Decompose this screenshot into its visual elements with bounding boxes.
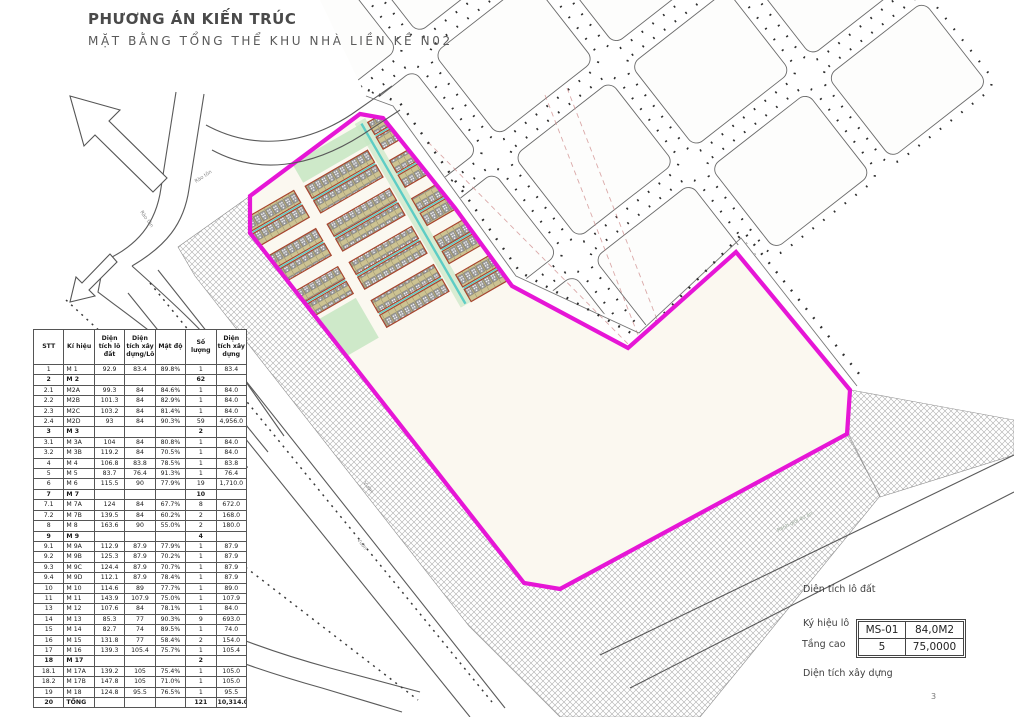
table-cell: 1: [186, 458, 216, 468]
table-row: 2.3M2C103.28481.4%184.0: [34, 406, 247, 416]
table-cell: 77: [125, 635, 155, 645]
table-cell: [125, 375, 155, 385]
table-cell: 4,956.0: [216, 417, 246, 427]
table-cell: 1: [186, 583, 216, 593]
table-cell: M 17B: [64, 677, 94, 687]
table-cell: 90: [125, 521, 155, 531]
table-cell: [216, 427, 246, 437]
table-row: 6M 6115.59077.9%191,710.0: [34, 479, 247, 489]
table-cell: 2: [186, 510, 216, 520]
lot-table-body: 1M 192.983.489.8%183.42M 2622.1M2A99.384…: [34, 365, 247, 708]
table-cell: [216, 489, 246, 499]
table-cell: 78.4%: [155, 573, 185, 583]
table-cell: 1: [186, 666, 216, 676]
page-number: 3: [931, 692, 936, 701]
table-cell: 143.9: [94, 593, 124, 603]
table-row: 17M 16139.3105.475.7%1105.4: [34, 645, 247, 655]
housing-row: [0, 30, 10, 84]
table-cell: 2.1: [34, 385, 64, 395]
table-cell: 84: [125, 437, 155, 447]
table-row: 11M 11143.9107.975.0%1107.9: [34, 593, 247, 603]
table-cell: 90.3%: [155, 417, 185, 427]
table-cell: M2A: [64, 385, 94, 395]
table-cell: 1: [186, 406, 216, 416]
table-cell: 2: [186, 521, 216, 531]
table-cell: 84: [125, 500, 155, 510]
table-cell: 105.0: [216, 666, 246, 676]
table-cell: 105: [125, 666, 155, 676]
table-cell: 104: [94, 437, 124, 447]
table-cell: 18: [34, 656, 64, 666]
table-cell: 84: [125, 396, 155, 406]
table-cell: 1: [34, 365, 64, 375]
table-cell: [216, 656, 246, 666]
table-cell: M 7B: [64, 510, 94, 520]
table-row: 1M 192.983.489.8%183.4: [34, 365, 247, 375]
table-cell: 9: [186, 614, 216, 624]
road-arrow-west: [70, 254, 117, 302]
table-cell: 95.5: [125, 687, 155, 697]
table-cell: TỔNG: [64, 698, 94, 708]
alley-drain: [0, 44, 11, 86]
table-cell: 84.0: [216, 448, 246, 458]
table-header-cell: STT: [34, 330, 64, 365]
table-cell: 1: [186, 396, 216, 406]
legend-lot-area-label: Diện tích lô đất: [803, 584, 876, 595]
table-cell: 87.9: [125, 552, 155, 562]
table-cell: 107.6: [94, 604, 124, 614]
table-cell: 1,710.0: [216, 479, 246, 489]
table-cell: [94, 698, 124, 708]
table-cell: 3.1: [34, 437, 64, 447]
table-cell: 84: [125, 448, 155, 458]
table-row: 9.4M 9D112.187.978.4%187.9: [34, 573, 247, 583]
table-cell: 131.8: [94, 635, 124, 645]
legend-floors-value: 5: [859, 639, 906, 655]
table-cell: 1: [186, 365, 216, 375]
table-cell: 6: [34, 479, 64, 489]
table-cell: 84.0: [216, 406, 246, 416]
housing-row: [18, 183, 98, 237]
housing-row: [128, 178, 206, 231]
table-cell: [125, 531, 155, 541]
table-cell: [216, 531, 246, 541]
table-cell: 75.0%: [155, 593, 185, 603]
table-cell: 83.8: [216, 458, 246, 468]
table-cell: M 3: [64, 427, 94, 437]
table-header-cell: Số lượng: [186, 330, 216, 365]
table-cell: 1: [186, 469, 216, 479]
table-cell: M 2: [64, 375, 94, 385]
table-cell: M 3A: [64, 437, 94, 447]
table-cell: 77: [125, 614, 155, 624]
table-row: 18.2M 17B147.810571.0%1105.0: [34, 677, 247, 687]
table-row: 2M 262: [34, 375, 247, 385]
table-cell: 7.1: [34, 500, 64, 510]
table-cell: M 7A: [64, 500, 94, 510]
table-row: 9M 94: [34, 531, 247, 541]
table-cell: [94, 656, 124, 666]
table-cell: 9.4: [34, 573, 64, 583]
table-cell: 1: [186, 541, 216, 551]
alley-drain: [0, 120, 55, 162]
table-cell: 92.9: [94, 365, 124, 375]
table-cell: [155, 489, 185, 499]
table-cell: M 3B: [64, 448, 94, 458]
table-cell: 78.1%: [155, 604, 185, 614]
table-cell: 80.8%: [155, 437, 185, 447]
table-cell: 19: [186, 479, 216, 489]
table-cell: 180.0: [216, 521, 246, 531]
alley-drain: [136, 192, 207, 233]
housing-row: [0, 45, 18, 99]
table-cell: M 18: [64, 687, 94, 697]
table-cell: 95.5: [216, 687, 246, 697]
legend-build-area-value: 75,0000: [906, 639, 963, 655]
table-cell: [125, 656, 155, 666]
table-cell: 115.5: [94, 479, 124, 489]
table-cell: 91.3%: [155, 469, 185, 479]
table-cell: [94, 427, 124, 437]
table-cell: 154.0: [216, 635, 246, 645]
table-cell: 1: [186, 687, 216, 697]
table-cell: [94, 531, 124, 541]
housing-row: [0, 0, 74, 3]
table-cell: 84.0: [216, 385, 246, 395]
legend-lot-code-value: MS-01: [859, 622, 906, 638]
table-cell: M 17A: [64, 666, 94, 676]
table-cell: 87.9: [216, 573, 246, 583]
table-cell: 82.9%: [155, 396, 185, 406]
table-cell: 58.4%: [155, 635, 185, 645]
table-cell: 84.0: [216, 437, 246, 447]
table-cell: 106.8: [94, 458, 124, 468]
table-cell: M 9D: [64, 573, 94, 583]
table-cell: 99.3: [94, 385, 124, 395]
table-cell: [155, 427, 185, 437]
drawing-sheet: Rào tôn Rào tôn Vườn Vườn Ranh giới dự á…: [0, 0, 1014, 717]
table-cell: 139.5: [94, 510, 124, 520]
table-row: 18.1M 17A139.210575.4%1105.0: [34, 666, 247, 676]
housing-row: [5, 160, 85, 214]
table-cell: 87.9: [216, 562, 246, 572]
table-cell: 13: [34, 604, 64, 614]
housing-row: [0, 107, 54, 161]
table-cell: 14: [34, 614, 64, 624]
table-cell: 1: [186, 593, 216, 603]
table-cell: 121: [186, 698, 216, 708]
table-cell: 9.2: [34, 552, 64, 562]
table-cell: 67.7%: [155, 500, 185, 510]
table-cell: 139.2: [94, 666, 124, 676]
table-cell: 101.3: [94, 396, 124, 406]
table-cell: [125, 427, 155, 437]
table-cell: [155, 375, 185, 385]
legend-floors-label: Tầng cao: [802, 639, 846, 650]
table-cell: 60.2%: [155, 510, 185, 520]
table-cell: 2: [186, 427, 216, 437]
table-cell: M 9B: [64, 552, 94, 562]
table-row: 9.2M 9B125.387.970.2%187.9: [34, 552, 247, 562]
table-cell: 81.4%: [155, 406, 185, 416]
housing-row: [48, 41, 126, 94]
table-header-cell: Kí hiệu: [64, 330, 94, 365]
table-cell: 9.3: [34, 562, 64, 572]
table-cell: 93: [94, 417, 124, 427]
legend-lot-code-label: Ký hiệu lô: [803, 618, 849, 629]
table-cell: 84: [125, 406, 155, 416]
table-row: 15M 1482.77489.5%174.0: [34, 625, 247, 635]
table-cell: 87.9: [125, 541, 155, 551]
table-cell: 124.4: [94, 562, 124, 572]
table-cell: 1: [186, 573, 216, 583]
table-row: 4M 4106.883.878.5%183.8: [34, 458, 247, 468]
table-cell: M 9C: [64, 562, 94, 572]
table-cell: 78.5%: [155, 458, 185, 468]
table-cell: 1: [186, 552, 216, 562]
table-cell: [125, 489, 155, 499]
table-cell: 9.1: [34, 541, 64, 551]
housing-row: [0, 145, 76, 199]
table-cell: [94, 375, 124, 385]
table-cell: 87.9: [125, 562, 155, 572]
housing-row: [0, 121, 62, 175]
table-cell: 75.4%: [155, 666, 185, 676]
table-cell: [155, 531, 185, 541]
table-row: 10M 10114.68977.7%189.0: [34, 583, 247, 593]
table-row: 19M 18124.895.576.5%195.5: [34, 687, 247, 697]
table-cell: 89: [125, 583, 155, 593]
table-cell: 139.3: [94, 645, 124, 655]
table-cell: 105.4: [125, 645, 155, 655]
table-cell: 7: [34, 489, 64, 499]
table-cell: 9: [34, 531, 64, 541]
table-cell: 77.9%: [155, 479, 185, 489]
table-cell: 4: [186, 531, 216, 541]
table-cell: 114.6: [94, 583, 124, 593]
table-cell: 1: [186, 677, 216, 687]
table-row: 9.3M 9C124.487.970.7%187.9: [34, 562, 247, 572]
table-cell: 163.6: [94, 521, 124, 531]
table-cell: 125.3: [94, 552, 124, 562]
table-cell: 90: [125, 479, 155, 489]
table-row: 8M 8163.69055.0%2180.0: [34, 521, 247, 531]
city-block: [0, 0, 121, 11]
table-cell: 87.9: [125, 573, 155, 583]
table-cell: 105.4: [216, 645, 246, 655]
table-cell: 2.4: [34, 417, 64, 427]
table-cell: 87.9: [216, 552, 246, 562]
table-cell: 84.6%: [155, 385, 185, 395]
table-cell: 1: [186, 562, 216, 572]
table-row: 9.1M 9A112.987.977.9%187.9: [34, 541, 247, 551]
table-cell: 20: [34, 698, 64, 708]
table-cell: 112.9: [94, 541, 124, 551]
table-cell: 70.5%: [155, 448, 185, 458]
housing-row: [0, 83, 40, 137]
table-cell: 119.2: [94, 448, 124, 458]
table-cell: 83.4: [125, 365, 155, 375]
table-cell: 74: [125, 625, 155, 635]
table-row: 7.2M 7B139.58460.2%2168.0: [34, 510, 247, 520]
table-cell: 70.7%: [155, 562, 185, 572]
table-cell: M 7: [64, 489, 94, 499]
table-cell: 16: [34, 635, 64, 645]
alley-drain: [4, 158, 77, 200]
table-cell: [155, 698, 185, 708]
table-cell: 18.1: [34, 666, 64, 676]
table-cell: 2: [186, 656, 216, 666]
table-cell: M 6: [64, 479, 94, 489]
table-cell: [94, 489, 124, 499]
table-row: 3M 32: [34, 427, 247, 437]
table-cell: 76.4: [216, 469, 246, 479]
table-cell: M 16: [64, 645, 94, 655]
page-subtitle: MẶT BẰNG TỔNG THỂ KHU NHÀ LIỀN KỀ N02: [88, 34, 453, 48]
legend-key-box: MS-01 84,0M2 5 75,0000: [858, 621, 964, 656]
table-row: 7.1M 7A1248467.7%8672.0: [34, 500, 247, 510]
alley-drain: [26, 1, 97, 42]
table-row: 2.1M2A99.38484.6%184.0: [34, 385, 247, 395]
table-cell: 84: [125, 385, 155, 395]
north-arrow: [70, 96, 167, 192]
table-cell: 11: [34, 593, 64, 603]
table-cell: M 1: [64, 365, 94, 375]
table-cell: 15: [34, 625, 64, 635]
table-cell: 105.0: [216, 677, 246, 687]
table-cell: 2: [186, 635, 216, 645]
fence-label: Rào tôn: [193, 168, 213, 184]
table-cell: 84: [125, 510, 155, 520]
lot-table-head: STTKí hiệuDiện tích lô đấtDiện tích xây …: [34, 330, 247, 365]
table-cell: 83.7: [94, 469, 124, 479]
table-cell: M2D: [64, 417, 94, 427]
table-cell: 59: [186, 417, 216, 427]
table-cell: 112.1: [94, 573, 124, 583]
table-cell: 3.2: [34, 448, 64, 458]
table-row: 18M 172: [34, 656, 247, 666]
table-cell: 82.7: [94, 625, 124, 635]
table-cell: 1: [186, 604, 216, 614]
table-cell: 2.2: [34, 396, 64, 406]
table-cell: 77.7%: [155, 583, 185, 593]
table-cell: 5: [34, 469, 64, 479]
table-cell: 672.0: [216, 500, 246, 510]
table-cell: M 9: [64, 531, 94, 541]
table-cell: 70.2%: [155, 552, 185, 562]
table-cell: M 14: [64, 625, 94, 635]
table-cell: M 9A: [64, 541, 94, 551]
table-header-cell: Diện tích xây dựng: [216, 330, 246, 365]
table-cell: 84: [125, 417, 155, 427]
table-cell: 84.0: [216, 396, 246, 406]
table-cell: 62: [186, 375, 216, 385]
table-cell: 107.9: [216, 593, 246, 603]
table-cell: 1: [186, 448, 216, 458]
table-cell: 2.3: [34, 406, 64, 416]
table-cell: M 11: [64, 593, 94, 603]
table-cell: 1: [186, 625, 216, 635]
table-cell: 147.8: [94, 677, 124, 687]
table-row: 3.2M 3B119.28470.5%184.0: [34, 448, 247, 458]
table-cell: M 5: [64, 469, 94, 479]
table-cell: 10: [34, 583, 64, 593]
table-cell: 107.9: [125, 593, 155, 603]
table-cell: 55.0%: [155, 521, 185, 531]
table-cell: 90.3%: [155, 614, 185, 624]
table-row: 2.2M2B101.38482.9%184.0: [34, 396, 247, 406]
table-header-cell: Diện tích lô đất: [94, 330, 124, 365]
table-cell: 18.2: [34, 677, 64, 687]
housing-row: [18, 0, 96, 41]
table-cell: M2C: [64, 406, 94, 416]
table-cell: 2: [34, 375, 64, 385]
table-header-cell: Mật độ: [155, 330, 185, 365]
table-cell: 1: [186, 645, 216, 655]
fence-label: Rào tôn: [138, 209, 155, 229]
table-cell: 105: [125, 677, 155, 687]
title-block: PHƯƠNG ÁN KIẾN TRÚC MẶT BẰNG TỔNG THỂ KH…: [88, 10, 453, 48]
table-row: 5M 583.776.491.3%176.4: [34, 469, 247, 479]
table-cell: 75.7%: [155, 645, 185, 655]
table-cell: 74.0: [216, 625, 246, 635]
table-row: 14M 1385.37790.3%9693.0: [34, 614, 247, 624]
table-cell: 84: [125, 604, 155, 614]
table-cell: [125, 698, 155, 708]
table-cell: 89.5%: [155, 625, 185, 635]
table-cell: 87.9: [216, 541, 246, 551]
table-cell: [216, 375, 246, 385]
legend-lot-area-value: 84,0M2: [906, 622, 963, 638]
table-cell: [155, 656, 185, 666]
table-cell: 3: [34, 427, 64, 437]
table-row: 2.4M2D938490.3%594,956.0: [34, 417, 247, 427]
table-cell: 124: [94, 500, 124, 510]
table-cell: 1: [186, 437, 216, 447]
table-cell: 71.0%: [155, 677, 185, 687]
table-cell: 4: [34, 458, 64, 468]
table-cell: 17: [34, 645, 64, 655]
table-cell: 89.0: [216, 583, 246, 593]
table-header-cell: Diện tích xây dựng/Lô: [125, 330, 155, 365]
table-cell: 693.0: [216, 614, 246, 624]
table-cell: 124.8: [94, 687, 124, 697]
table-cell: 8: [186, 500, 216, 510]
housing-row: [27, 198, 107, 252]
table-cell: 168.0: [216, 510, 246, 520]
table-cell: 8: [34, 521, 64, 531]
table-cell: M 4: [64, 458, 94, 468]
table-cell: 1: [186, 385, 216, 395]
page-title: PHƯƠNG ÁN KIẾN TRÚC: [88, 10, 453, 28]
alley-drain: [4, 0, 75, 4]
table-cell: M 17: [64, 656, 94, 666]
table-cell: 85.3: [94, 614, 124, 624]
table-cell: M2B: [64, 396, 94, 406]
table-cell: 19: [34, 687, 64, 697]
table-cell: 76.5%: [155, 687, 185, 697]
table-cell: 10,314.0: [216, 698, 246, 708]
table-cell: 84.0: [216, 604, 246, 614]
table-cell: 10: [186, 489, 216, 499]
table-cell: 77.9%: [155, 541, 185, 551]
table-row: 13M 12107.68478.1%184.0: [34, 604, 247, 614]
table-cell: 76.4: [125, 469, 155, 479]
housing-row: [4, 0, 82, 17]
housing-row: [0, 69, 32, 123]
table-row: 16M 15131.87758.4%2154.0: [34, 635, 247, 645]
table-cell: 7.2: [34, 510, 64, 520]
